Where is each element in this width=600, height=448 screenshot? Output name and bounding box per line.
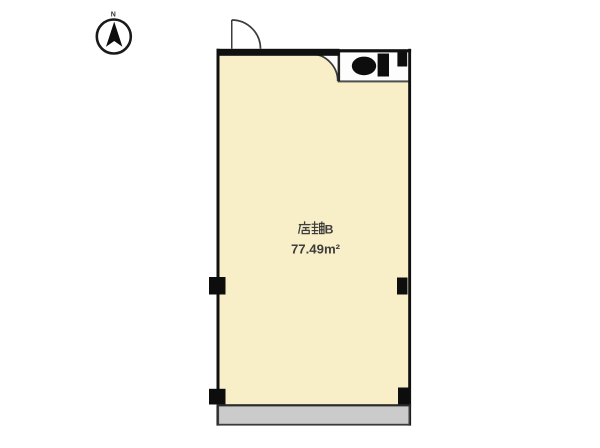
svg-text:B: B	[325, 223, 334, 237]
svg-text:N: N	[111, 12, 116, 19]
svg-text:77.49m²: 77.49m²	[291, 242, 341, 257]
